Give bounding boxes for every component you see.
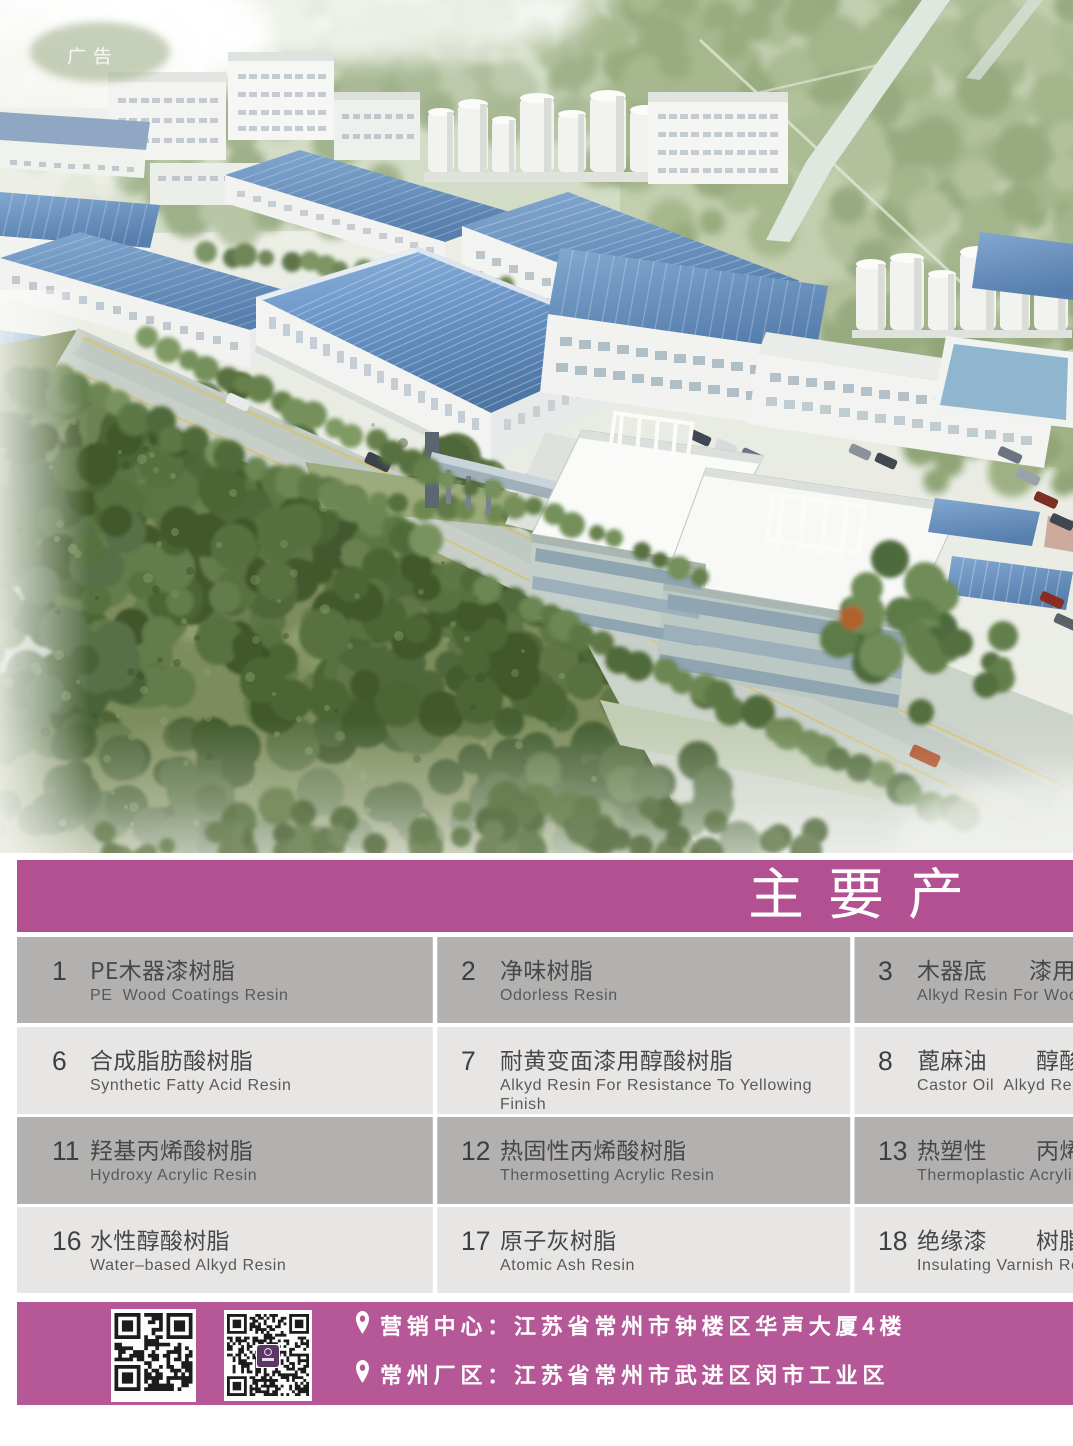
svg-text:Alkyd Resin For Wood Primer: Alkyd Resin For Wood Primer [917, 987, 1073, 1004]
svg-text:PE Wood Coatings Resin: PE Wood Coatings Resin [90, 987, 289, 1004]
svg-text:12: 12 [461, 1136, 490, 1166]
svg-text:Synthetic Fatty Acid Resin: Synthetic Fatty Acid Resin [90, 1077, 291, 1094]
svg-text:1: 1 [52, 956, 67, 986]
svg-text:Insulating Varnish Resin: Insulating Varnish Resin [917, 1257, 1073, 1274]
svg-text:6: 6 [52, 1046, 67, 1076]
svg-text:3: 3 [878, 956, 893, 986]
svg-text:Alkyd Resin For Resistance To: Alkyd Resin For Resistance To Yellowing [500, 1077, 812, 1094]
svg-text:11: 11 [52, 1136, 80, 1166]
svg-text:13: 13 [878, 1136, 907, 1166]
svg-text:17: 17 [461, 1226, 490, 1256]
svg-text:Castor Oil Alkyd Resin: Castor Oil Alkyd Resin [917, 1077, 1073, 1094]
svg-text:2: 2 [461, 956, 476, 986]
svg-text:Finish: Finish [500, 1096, 546, 1113]
svg-text:Thermosetting Acrylic Resin: Thermosetting Acrylic Resin [500, 1167, 715, 1184]
svg-text:Hydroxy Acrylic Resin: Hydroxy Acrylic Resin [90, 1167, 257, 1184]
svg-text:Atomic Ash Resin: Atomic Ash Resin [500, 1257, 635, 1274]
svg-text:18: 18 [878, 1226, 907, 1256]
svg-text:16: 16 [52, 1226, 81, 1256]
svg-text:Water–based Alkyd Resin: Water–based Alkyd Resin [90, 1257, 286, 1274]
svg-text:7: 7 [461, 1046, 476, 1076]
svg-text:Odorless Resin: Odorless Resin [500, 987, 618, 1004]
svg-text:8: 8 [878, 1046, 893, 1076]
svg-text:Thermoplastic Acrylic Resin: Thermoplastic Acrylic Resin [917, 1167, 1073, 1184]
